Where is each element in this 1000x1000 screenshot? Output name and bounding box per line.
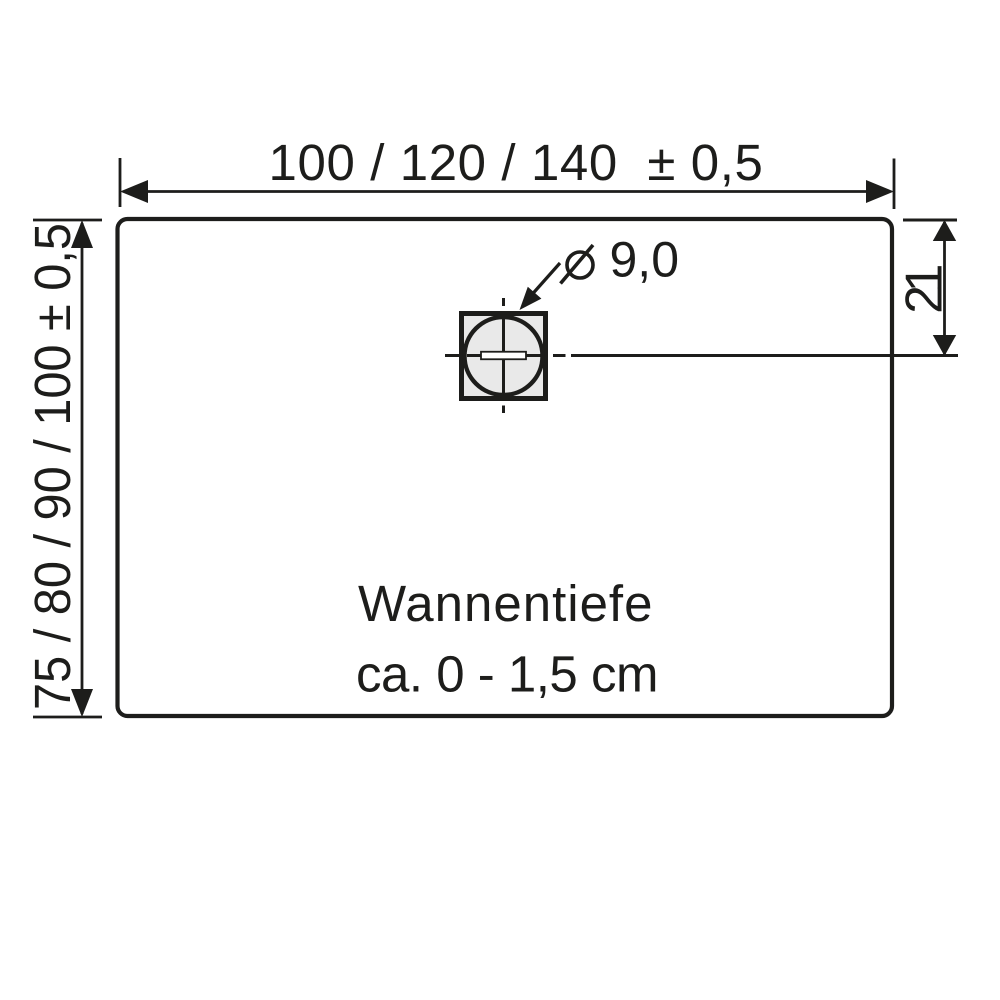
svg-text:ca. 0 - 1,5 cm: ca. 0 - 1,5 cm <box>356 646 658 703</box>
svg-text:21: 21 <box>896 266 954 314</box>
svg-text:100 / 120 / 140 ± 0,5: 100 / 120 / 140 ± 0,5 <box>269 134 764 191</box>
svg-text:Wannentiefe: Wannentiefe <box>358 575 653 632</box>
svg-text:75 / 80 / 90 / 100 ± 0,5: 75 / 80 / 90 / 100 ± 0,5 <box>24 223 81 710</box>
svg-text:9,0: 9,0 <box>610 232 680 288</box>
